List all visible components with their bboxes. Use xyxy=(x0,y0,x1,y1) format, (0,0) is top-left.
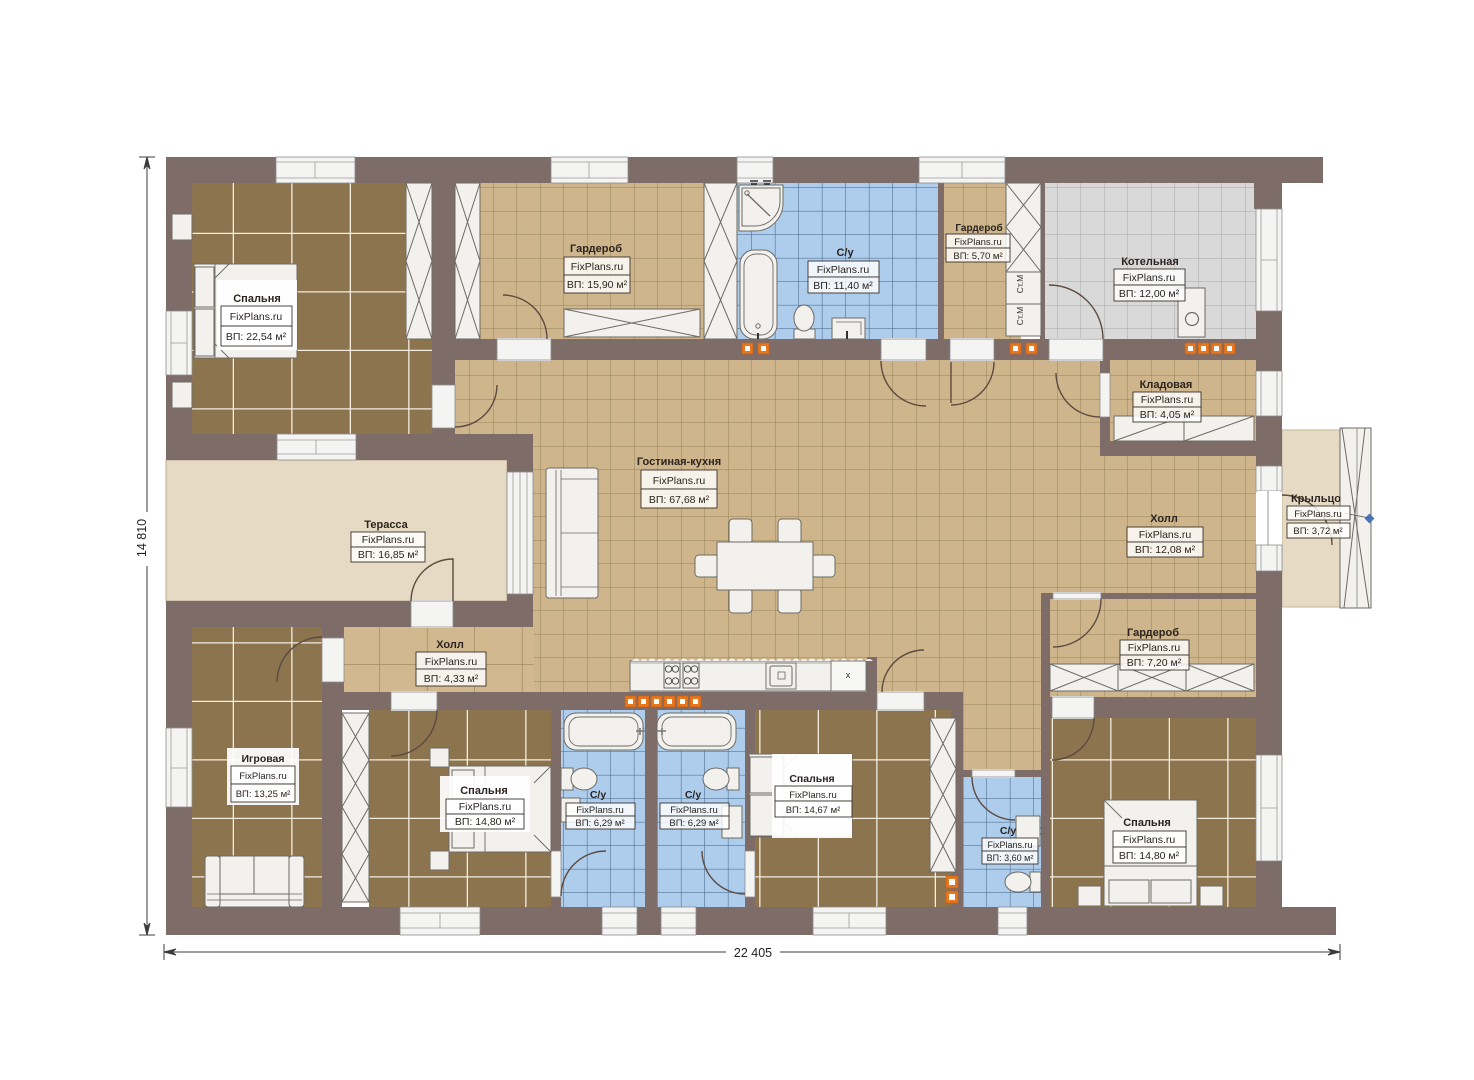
svg-text:ВП: 4,05 м²: ВП: 4,05 м² xyxy=(1140,409,1195,421)
svg-text:ВП: 5,70 м²: ВП: 5,70 м² xyxy=(953,251,1002,262)
svg-text:ВП: 3,72 м²: ВП: 3,72 м² xyxy=(1293,526,1342,537)
svg-text:FixPlans.ru: FixPlans.ru xyxy=(653,475,706,487)
svg-text:Холл: Холл xyxy=(1150,513,1178,525)
svg-text:Котельная: Котельная xyxy=(1121,256,1179,268)
svg-text:Холл: Холл xyxy=(436,639,464,651)
svg-text:ВП: 16,85 м²: ВП: 16,85 м² xyxy=(358,549,419,561)
svg-text:Спальня: Спальня xyxy=(460,785,508,797)
svg-text:С/у: С/у xyxy=(590,789,607,801)
svg-text:ВП: 13,25 м²: ВП: 13,25 м² xyxy=(236,789,291,800)
svg-text:ВП: 14,80 м²: ВП: 14,80 м² xyxy=(455,816,516,828)
svg-text:Гардероб: Гардероб xyxy=(1127,627,1179,639)
svg-text:FixPlans.ru: FixPlans.ru xyxy=(1294,509,1342,520)
svg-text:ВП: 12,00 м²: ВП: 12,00 м² xyxy=(1119,288,1180,300)
svg-text:FixPlans.ru: FixPlans.ru xyxy=(1141,394,1194,406)
svg-text:ВП: 22,54 м²: ВП: 22,54 м² xyxy=(226,331,287,343)
svg-text:FixPlans.ru: FixPlans.ru xyxy=(987,840,1032,850)
svg-text:FixPlans.ru: FixPlans.ru xyxy=(571,261,624,273)
svg-text:С/у: С/у xyxy=(1000,825,1017,837)
svg-text:Гардероб: Гардероб xyxy=(570,243,622,255)
svg-text:ВП: 4,33 м²: ВП: 4,33 м² xyxy=(424,673,479,685)
svg-text:x: x xyxy=(846,670,851,680)
svg-text:FixPlans.ru: FixPlans.ru xyxy=(817,264,870,276)
svg-text:FixPlans.ru: FixPlans.ru xyxy=(425,656,478,668)
svg-text:FixPlans.ru: FixPlans.ru xyxy=(362,534,415,546)
svg-text:ВП: 67,68 м²: ВП: 67,68 м² xyxy=(649,494,710,506)
svg-text:FixPlans.ru: FixPlans.ru xyxy=(1128,642,1181,654)
svg-text:ВП: 3,60 м²: ВП: 3,60 м² xyxy=(987,853,1034,863)
svg-text:С/у: С/у xyxy=(685,789,702,801)
svg-text:Спальня: Спальня xyxy=(1123,817,1171,829)
svg-text:Крыльцо: Крыльцо xyxy=(1291,493,1341,505)
svg-text:Ст.М: Ст.М xyxy=(1015,307,1025,326)
svg-text:ВП: 14,80 м²: ВП: 14,80 м² xyxy=(1119,850,1180,862)
svg-text:FixPlans.ru: FixPlans.ru xyxy=(789,790,837,801)
svg-text:FixPlans.ru: FixPlans.ru xyxy=(670,805,718,816)
svg-text:FixPlans.ru: FixPlans.ru xyxy=(230,311,283,323)
svg-text:FixPlans.ru: FixPlans.ru xyxy=(1139,529,1192,541)
svg-text:ВП: 6,29 м²: ВП: 6,29 м² xyxy=(669,818,718,829)
svg-text:FixPlans.ru: FixPlans.ru xyxy=(576,805,624,816)
svg-text:FixPlans.ru: FixPlans.ru xyxy=(239,771,287,782)
svg-text:ВП: 11,40 м²: ВП: 11,40 м² xyxy=(813,280,873,292)
svg-text:ВП: 15,90 м²: ВП: 15,90 м² xyxy=(567,279,628,291)
svg-text:Гостиная-кухня: Гостиная-кухня xyxy=(637,456,721,468)
svg-text:Спальня: Спальня xyxy=(233,293,281,305)
svg-text:FixPlans.ru: FixPlans.ru xyxy=(1123,834,1176,846)
svg-text:FixPlans.ru: FixPlans.ru xyxy=(954,237,1002,248)
svg-text:С/у: С/у xyxy=(836,247,854,259)
svg-text:ВП: 12,08 м²: ВП: 12,08 м² xyxy=(1135,544,1196,556)
svg-text:Игровая: Игровая xyxy=(241,753,284,765)
svg-text:FixPlans.ru: FixPlans.ru xyxy=(459,801,512,813)
svg-text:FixPlans.ru: FixPlans.ru xyxy=(1123,272,1176,284)
svg-text:22 405: 22 405 xyxy=(734,946,772,960)
svg-text:ВП: 7,20 м²: ВП: 7,20 м² xyxy=(1127,657,1182,669)
svg-text:Терасса: Терасса xyxy=(364,519,408,531)
svg-text:Спальня: Спальня xyxy=(789,773,834,785)
svg-text:Ст.М: Ст.М xyxy=(1015,275,1025,294)
svg-text:Кладовая: Кладовая xyxy=(1140,379,1193,391)
svg-text:ВП: 14,67 м²: ВП: 14,67 м² xyxy=(786,805,841,816)
svg-text:ВП: 6,29 м²: ВП: 6,29 м² xyxy=(575,818,624,829)
svg-text:Гардероб: Гардероб xyxy=(955,222,1002,234)
svg-text:14 810: 14 810 xyxy=(135,519,149,557)
